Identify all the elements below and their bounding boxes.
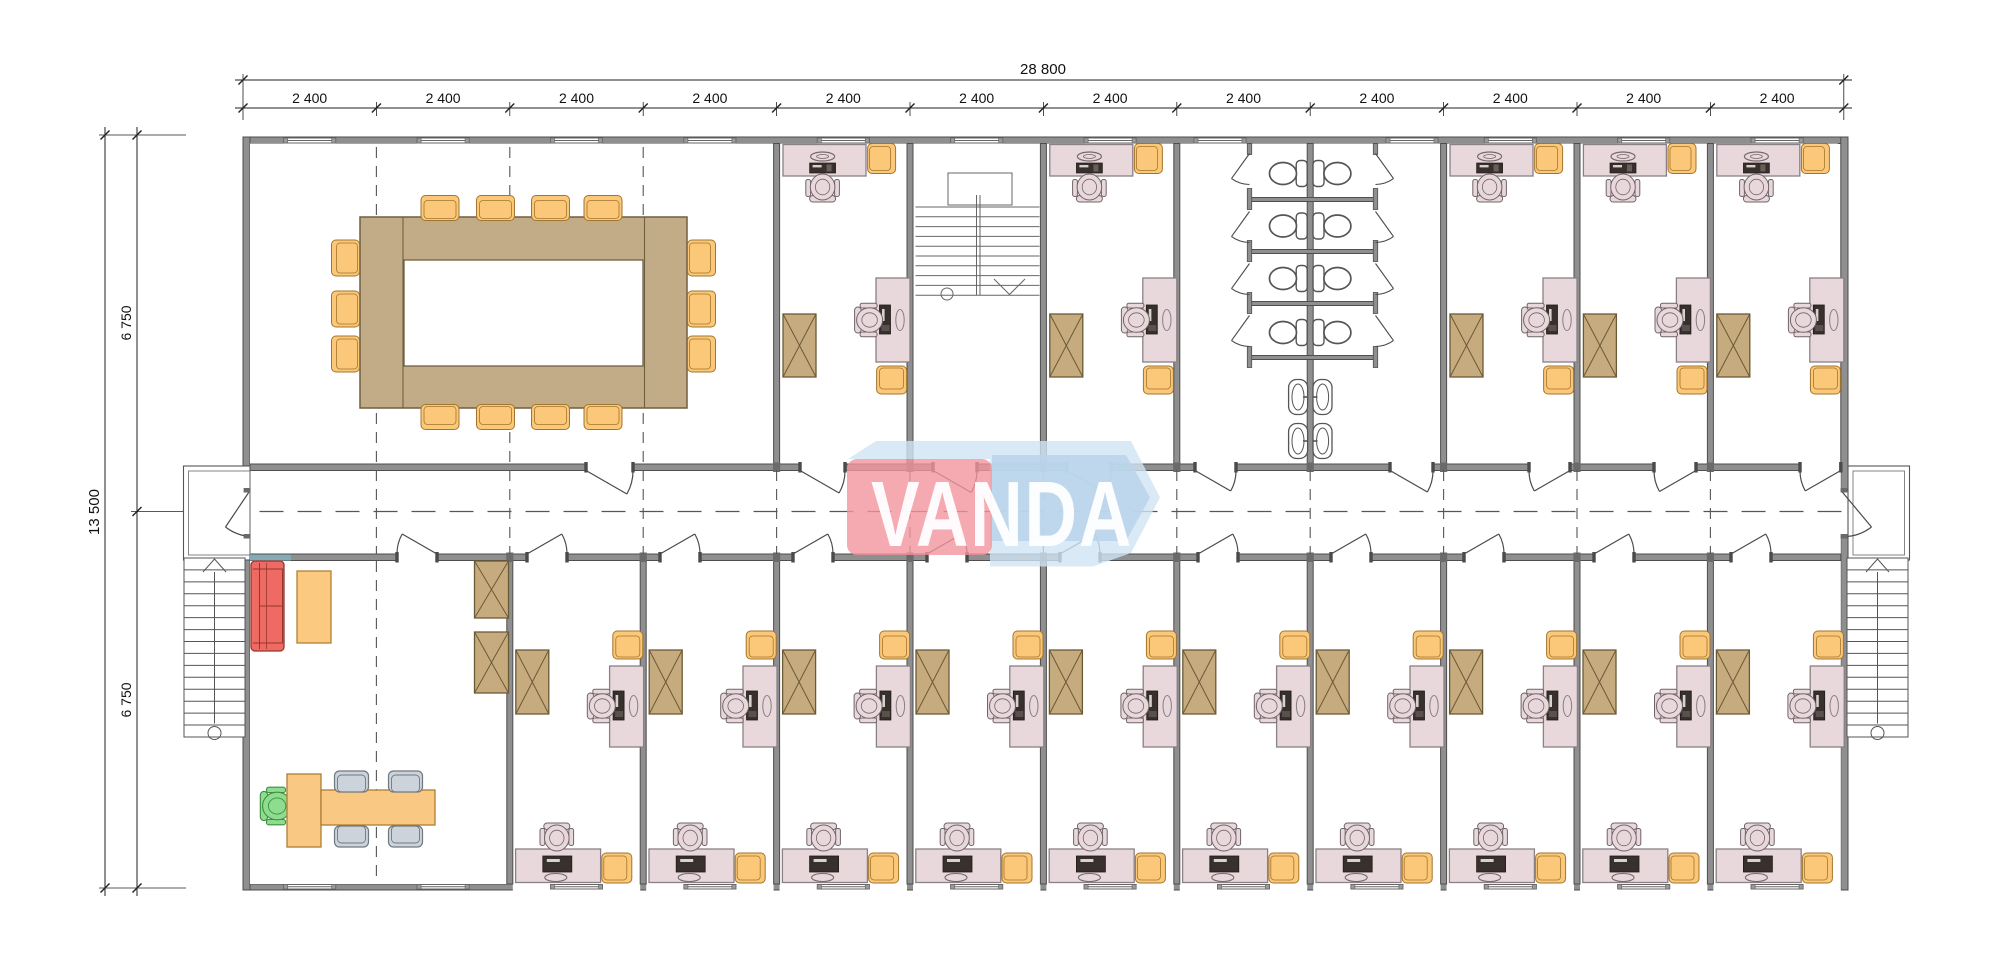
svg-text:6 750: 6 750 — [118, 682, 134, 717]
svg-text:2 400: 2 400 — [959, 90, 994, 106]
svg-text:6 750: 6 750 — [118, 305, 134, 340]
svg-text:2 400: 2 400 — [1093, 90, 1128, 106]
svg-text:2 400: 2 400 — [1760, 90, 1795, 106]
svg-text:2 400: 2 400 — [292, 90, 327, 106]
svg-text:VANDA: VANDA — [871, 461, 1133, 566]
svg-text:2 400: 2 400 — [426, 90, 461, 106]
svg-text:2 400: 2 400 — [1359, 90, 1394, 106]
svg-text:2 400: 2 400 — [692, 90, 727, 106]
svg-text:2 400: 2 400 — [1626, 90, 1661, 106]
svg-text:2 400: 2 400 — [1226, 90, 1261, 106]
svg-text:2 400: 2 400 — [559, 90, 594, 106]
svg-text:2 400: 2 400 — [826, 90, 861, 106]
svg-text:2 400: 2 400 — [1493, 90, 1528, 106]
svg-text:28 800: 28 800 — [1020, 61, 1066, 78]
svg-text:13 500: 13 500 — [86, 489, 103, 535]
